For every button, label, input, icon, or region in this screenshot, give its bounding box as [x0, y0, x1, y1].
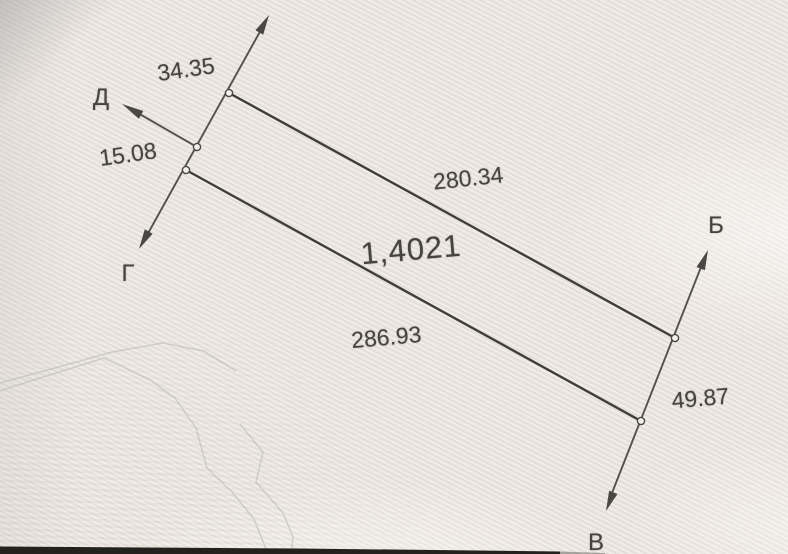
- photo-edge-dark: [0, 547, 560, 554]
- right-transversal-line: [610, 262, 703, 498]
- contour-line: [240, 424, 293, 554]
- vertex-marker: [182, 166, 189, 173]
- b-arrowhead: [697, 250, 709, 270]
- vertex-marker: [671, 334, 678, 341]
- g-arrowhead: [139, 229, 153, 249]
- point-label-d: Д: [93, 84, 109, 111]
- dim-left-upper: 34.35: [156, 52, 217, 86]
- dim-top-side: 280.34: [432, 161, 505, 194]
- contour-line: [0, 343, 236, 384]
- parcel-top-side: [229, 93, 675, 338]
- scanned-survey-photo: 34.35 15.08 280.34 286.93 49.87 1,4021 Д…: [0, 0, 788, 554]
- dim-right-side: 49.87: [670, 383, 730, 414]
- point-label-g: Г: [122, 260, 135, 287]
- vertex-marker: [193, 143, 200, 150]
- photo-edge-shadow: [0, 547, 605, 554]
- contour-line: [0, 358, 268, 554]
- north-arrowhead: [255, 15, 269, 35]
- survey-sketch: 34.35 15.08 280.34 286.93 49.87 1,4021 Д…: [0, 0, 788, 554]
- parcel-bottom-side: [186, 170, 641, 421]
- vertex-marker: [225, 89, 232, 96]
- point-label-b: Б: [708, 212, 724, 239]
- dim-bottom-side: 286.93: [350, 321, 422, 353]
- vertex-marker: [637, 417, 644, 424]
- point-label-v: В: [588, 529, 604, 554]
- contour-lines: [0, 343, 293, 554]
- dim-left-lower: 15.08: [98, 137, 159, 171]
- area-label: 1,4021: [359, 228, 462, 272]
- d-arrowhead: [122, 104, 143, 119]
- v-arrowhead: [606, 491, 618, 511]
